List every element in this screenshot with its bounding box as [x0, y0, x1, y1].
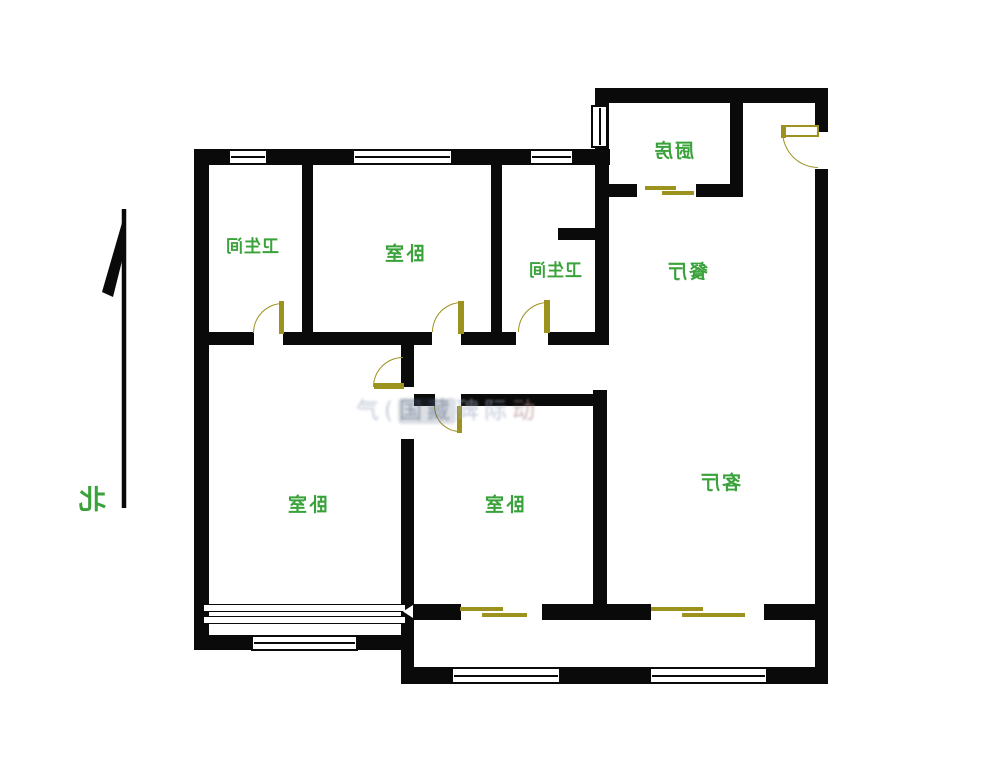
wall-top-east [596, 88, 828, 103]
wall-bath1-bedroom-divider [302, 160, 313, 343]
wall-kitchen-right [730, 98, 743, 196]
entrance-door-edge [781, 125, 786, 138]
bay-window-line-upper [203, 604, 406, 612]
watermark-part3: 碑际 [456, 398, 512, 424]
room-label-bedroom-north: 卧室 [380, 239, 428, 266]
wall-balcony-top-a [406, 604, 461, 620]
bedroom-north-door-leaf [458, 301, 464, 334]
watermark-part2: 国藏 [398, 398, 456, 424]
wall-bedroom-bath2-divider [491, 160, 502, 343]
window-bath2 [529, 149, 574, 165]
room-label-living: 客厅 [690, 468, 750, 495]
balcony-slider-west-a [460, 607, 503, 611]
room-label-bathroom-1: 卫生间 [219, 232, 285, 257]
entrance-door-leaf [781, 125, 819, 137]
kitchen-slider-b [662, 191, 694, 195]
room-label-dining: 餐厅 [660, 257, 714, 284]
opening-bedroom-north-door [432, 332, 461, 345]
window-bedroom-west [251, 635, 358, 651]
bath2-door-leaf [544, 300, 550, 333]
wall-bath2-stub [558, 228, 609, 240]
floor-plan: 卫生间 卧室 卫生间 厨房 餐厅 卧室 卧室 客厅 北 气(国藏碑际动 [0, 0, 984, 778]
north-label: 北 [79, 478, 106, 517]
room-label-bedroom-middle: 卧室 [479, 490, 529, 517]
watermark-part4: 动 [512, 398, 540, 424]
room-label-bedroom-west: 卧室 [280, 490, 334, 517]
north-arrow [95, 200, 135, 515]
window-shaft [591, 105, 608, 148]
room-label-bathroom-2: 卫生间 [522, 256, 588, 281]
window-bath1 [228, 149, 268, 165]
window-balcony-east [649, 667, 768, 684]
wall-balcony-top-b [542, 604, 651, 620]
wall-left-outer [194, 149, 209, 650]
window-balcony-west [451, 667, 561, 684]
balcony-slider-east-b [682, 613, 745, 617]
watermark-part1: 气( [356, 398, 398, 424]
bath1-door-leaf [279, 301, 284, 334]
balcony-slider-east-a [651, 607, 703, 611]
wall-right-outer [815, 88, 828, 681]
kitchen-slider-a [645, 186, 676, 190]
balcony-slider-west-b [482, 613, 527, 617]
watermark: 气(国藏碑际动 [356, 391, 540, 425]
window-bedroom-north [352, 149, 453, 165]
opening-bath2-door [516, 332, 548, 345]
room-label-kitchen: 厨房 [646, 136, 700, 163]
bay-window-line-lower [203, 616, 406, 624]
wall-center-vertical-lower [593, 390, 607, 620]
wall-balcony-top-c [764, 604, 820, 620]
bedroom-west-door-leaf [374, 383, 404, 389]
